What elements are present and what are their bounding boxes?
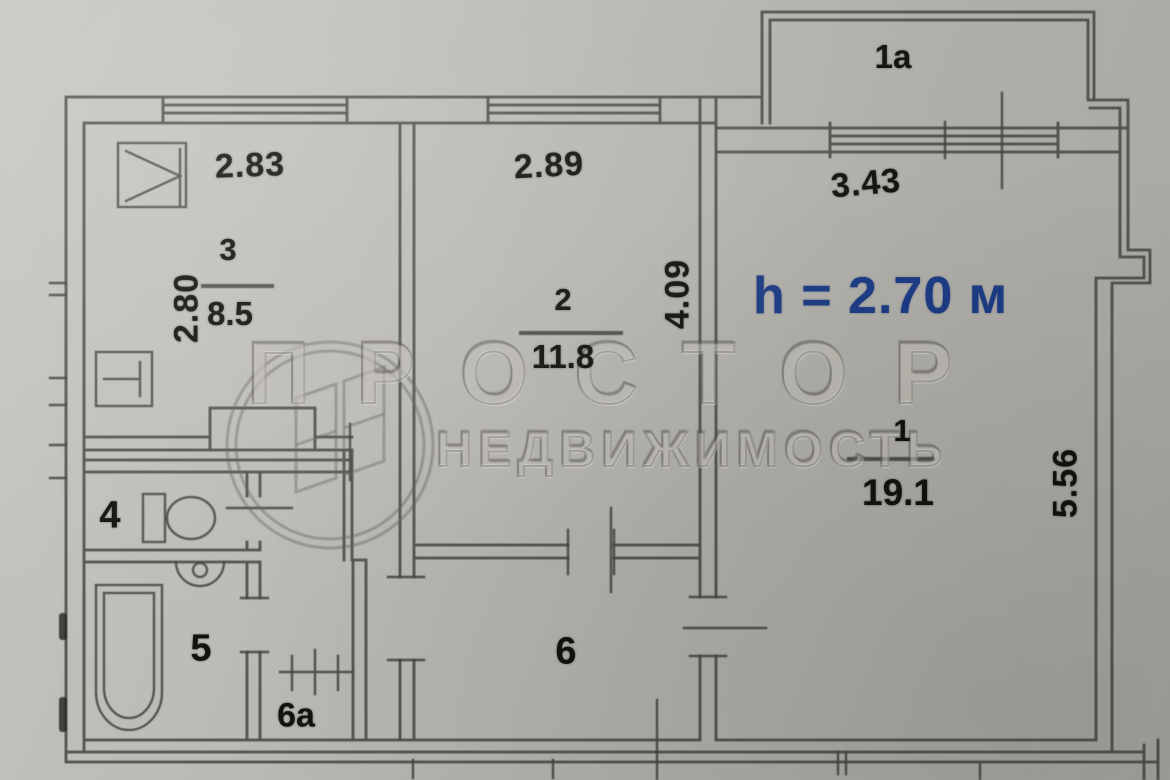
toilet-icon <box>143 494 215 542</box>
room6a-number: 6a <box>277 697 315 736</box>
ceiling-height-note: h = 2.70 м <box>753 266 1008 326</box>
floor-plan-photo: ПРОСТОР НЕДВИЖИМОСТЬ 2.83 2.89 3.43 2.80… <box>0 0 1170 780</box>
dimension-room1-depth: 5.56 <box>1047 448 1086 518</box>
room-label-balcony-1a: 1a <box>875 38 912 76</box>
dimension-kitchen-width: 2.83 <box>214 145 286 186</box>
floor-plan-drawing <box>0 0 1170 780</box>
watermark-logo-icon <box>227 342 433 548</box>
kitchen-stove-icon <box>96 352 152 406</box>
room1-number: 1 <box>893 413 910 449</box>
room3-area: 8.5 <box>207 295 253 333</box>
washbasin-icon <box>176 562 224 586</box>
room5-number: 5 <box>190 628 211 671</box>
room6-number: 6 <box>555 631 576 674</box>
walls <box>66 12 1158 780</box>
room2-number: 2 <box>554 282 571 318</box>
dimension-room1-width: 3.43 <box>829 162 902 207</box>
bathtub-icon <box>96 585 162 730</box>
room4-number: 4 <box>99 495 120 538</box>
room2-area: 11.8 <box>532 338 594 376</box>
room3-number: 3 <box>219 232 236 268</box>
kitchen-sink-icon <box>118 143 186 207</box>
room1-area: 19.1 <box>862 472 934 514</box>
dimension-kitchen-depth: 2.80 <box>168 273 207 343</box>
dimension-room2-depth: 4.09 <box>659 259 698 329</box>
dimension-room2-width: 2.89 <box>513 145 585 188</box>
